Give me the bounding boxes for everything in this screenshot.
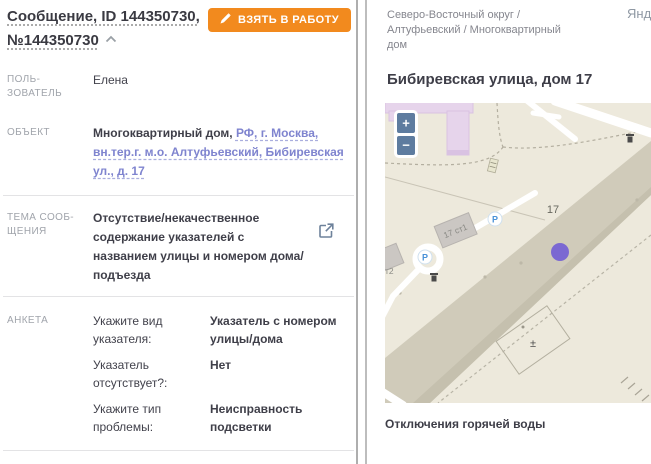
map-dot [522, 326, 525, 329]
anketa-label: АНКЕТА [7, 312, 93, 328]
chevron-up-icon[interactable] [105, 28, 117, 50]
hot-water-outages-heading: Отключения горячей воды [385, 417, 545, 431]
user-row: ПОЛЬ-ЗОВАТЕЛЬ Елена [7, 71, 353, 101]
parking-icon: Р [488, 212, 502, 226]
left-panel-scrollbar[interactable] [356, 0, 358, 464]
theme-value: Отсутствие/некачественное содержание ука… [93, 209, 311, 285]
object-type: Многоквартирный дом, [93, 126, 233, 140]
anketa-item: Укажите тип проблемы: Неисправность подс… [93, 400, 353, 436]
zoom-out-button[interactable]: − [397, 136, 415, 155]
user-label: ПОЛЬ-ЗОВАТЕЛЬ [7, 71, 93, 101]
anketa-item: Указатель отсутствует?: Нет [93, 356, 353, 392]
pencil-icon [220, 13, 231, 27]
anketa-answer: Указатель с номером улицы/дома [210, 312, 353, 348]
message-details-panel: Сообщение, ID 144350730, №144350730 ВЗЯТ… [0, 0, 357, 464]
anketa-row: АНКЕТА Укажите вид указателя: Указатель … [7, 312, 353, 436]
map-dot [519, 261, 522, 264]
object-label: ОБЪЕКТ [7, 124, 93, 140]
anketa-question: Укажите тип проблемы: [93, 400, 210, 436]
map-dot [635, 198, 638, 201]
svg-text:Р: Р [492, 215, 498, 225]
theme-label: ТЕМА СООБ-ЩЕНИЯ [7, 209, 93, 239]
svg-text:−: − [402, 138, 410, 153]
object-row: ОБЪЕКТ Многоквартирный дом, РФ, г. Москв… [7, 124, 353, 181]
map-monument-icon: ± [530, 338, 536, 350]
map-canvas[interactable]: 17 ст1 т2 ± 17 Р [385, 103, 651, 403]
anketa-item: Укажите вид указателя: Указатель с номер… [93, 312, 353, 348]
take-to-work-button[interactable]: ВЗЯТЬ В РАБОТУ [208, 8, 351, 32]
message-title-link[interactable]: Сообщение, ID 144350730, [7, 8, 200, 25]
page-title: Сообщение, ID 144350730, №144350730 [7, 6, 232, 52]
parking-icon: Р [418, 250, 432, 264]
message-number-link[interactable]: №144350730 [7, 32, 99, 49]
external-link-icon[interactable] [319, 223, 334, 285]
map-heading: Бибиревская улица, дом 17 [387, 71, 592, 88]
map-label-17: 17 [547, 204, 559, 216]
map-label-t2: т2 [385, 266, 394, 276]
svg-text:Р: Р [422, 253, 428, 263]
take-to-work-label: ВЗЯТЬ В РАБОТУ [238, 14, 339, 26]
map[interactable]: 17 ст1 т2 ± 17 Р [385, 103, 651, 403]
map-dot [483, 275, 486, 278]
breadcrumb[interactable]: Северо-Восточный округ / Алтуфьевский / … [387, 8, 569, 53]
location-marker[interactable] [551, 243, 569, 261]
anketa-question: Указатель отсутствует?: [93, 356, 210, 392]
anketa-answer: Неисправность подсветки [210, 400, 353, 436]
map-zoom-control: + − [394, 110, 418, 158]
user-value: Елена [93, 71, 353, 90]
panel-divider [365, 0, 367, 464]
object-map-panel: Северо-Восточный округ / Алтуфьевский / … [368, 0, 651, 464]
anketa-answer: Нет [210, 356, 353, 392]
anketa-question: Укажите вид указателя: [93, 312, 210, 348]
svg-text:+: + [402, 116, 410, 131]
yandex-attribution[interactable]: Янд [627, 6, 651, 21]
object-value: Многоквартирный дом, РФ, г. Москва, вн.т… [93, 124, 353, 181]
zoom-in-button[interactable]: + [397, 113, 415, 133]
theme-row: ТЕМА СООБ-ЩЕНИЯ Отсутствие/некачественно… [7, 209, 353, 285]
